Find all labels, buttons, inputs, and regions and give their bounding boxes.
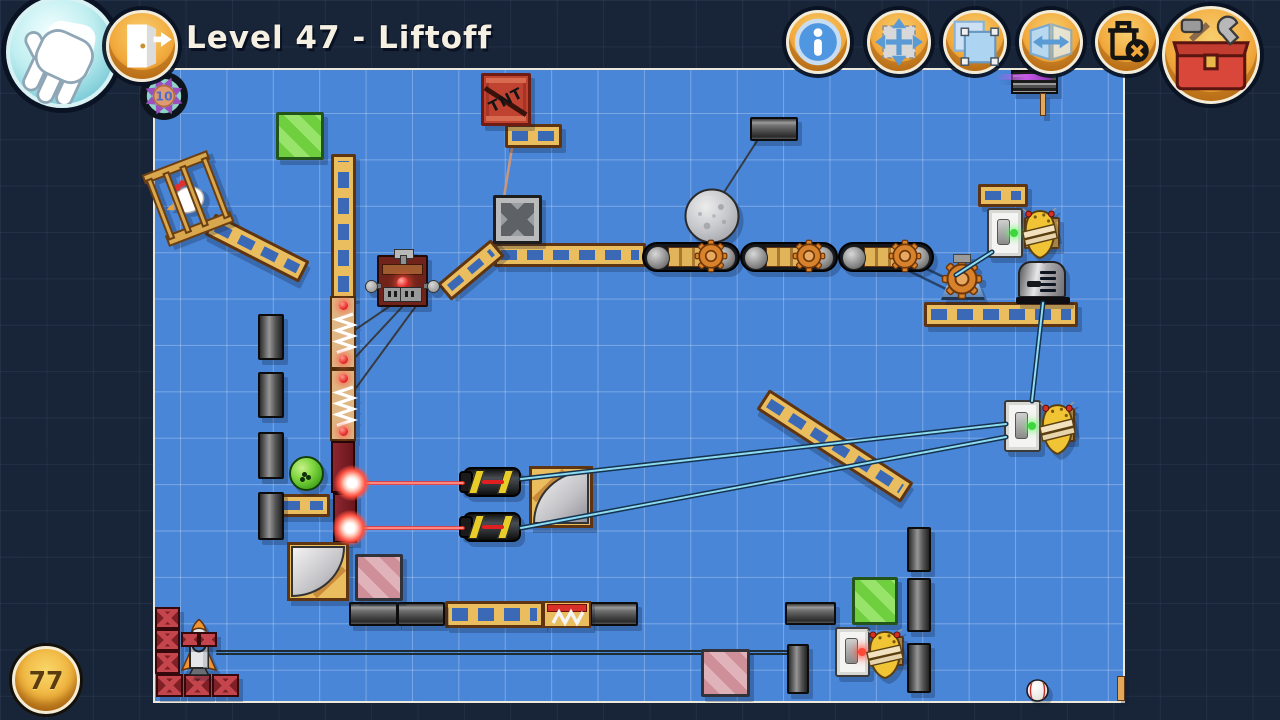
hornet-nest[interactable]: [1021, 208, 1059, 260]
conveyor-belt[interactable]: [838, 242, 934, 272]
moon-ball[interactable]: [684, 188, 740, 244]
conveyor-belt[interactable]: [642, 242, 740, 272]
svg-text:10: 10: [155, 89, 173, 104]
delete-button[interactable]: [1095, 10, 1159, 74]
steel-block[interactable]: [907, 527, 931, 572]
steel-block[interactable]: [349, 602, 398, 626]
gear-icon: [694, 239, 728, 273]
gear-icon: [792, 239, 826, 273]
boxed-spring[interactable]: [543, 601, 591, 628]
wooden-girder[interactable]: [505, 124, 562, 148]
green-striped-crate[interactable]: [852, 577, 898, 625]
spring[interactable]: [330, 296, 356, 369]
green-bowling-ball[interactable]: [289, 456, 324, 491]
red-truss-crate[interactable]: [155, 607, 180, 629]
spring[interactable]: [330, 369, 356, 441]
pink-striped-crate[interactable]: [701, 649, 750, 697]
curved-mirror[interactable]: [529, 466, 593, 528]
steel-block[interactable]: [590, 602, 638, 626]
switch-light-green: [1028, 422, 1036, 430]
steel-block[interactable]: [787, 644, 809, 694]
red-truss-crate[interactable]: [184, 674, 211, 697]
metal-crate[interactable]: [493, 195, 542, 244]
roller: [646, 246, 670, 270]
red-truss-crate[interactable]: [155, 629, 180, 651]
switch-light-green: [1010, 229, 1018, 237]
steel-block[interactable]: [785, 602, 836, 625]
roller: [842, 246, 866, 270]
green-striped-crate[interactable]: [276, 112, 324, 160]
baseball[interactable]: [1026, 679, 1049, 702]
steel-block[interactable]: [258, 432, 284, 479]
wooden-girder[interactable]: [494, 243, 646, 267]
red-truss-crate[interactable]: [212, 674, 239, 697]
toaster[interactable]: [1016, 261, 1070, 304]
level-title: Level 47 - Liftoff: [186, 20, 492, 56]
hornet-nest[interactable]: [1038, 402, 1077, 456]
steel-block[interactable]: [397, 602, 445, 626]
steel-block[interactable]: [258, 372, 284, 418]
gear-icon: [941, 258, 983, 300]
laser-gun[interactable]: [463, 512, 521, 542]
play-area[interactable]: [153, 68, 1125, 703]
steel-block[interactable]: [907, 578, 931, 632]
score-value: 77: [29, 666, 64, 695]
laser-spark: [332, 510, 368, 546]
red-truss-crate[interactable]: [199, 632, 217, 647]
laser-gun[interactable]: [463, 467, 521, 497]
wooden-girder[interactable]: [924, 302, 1078, 327]
select-button[interactable]: [943, 10, 1007, 74]
laser-spark: [334, 465, 370, 501]
pink-striped-crate[interactable]: [355, 554, 403, 601]
red-truss-crate[interactable]: [156, 674, 183, 697]
wooden-girder[interactable]: [445, 601, 544, 628]
flip-button[interactable]: [1019, 10, 1083, 74]
wall-switch[interactable]: [987, 208, 1023, 258]
roller: [744, 246, 768, 270]
motor-bracket: [953, 254, 971, 263]
steel-block[interactable]: [750, 117, 798, 141]
wooden-girder[interactable]: [277, 494, 330, 517]
hand-tool-button[interactable]: [6, 0, 118, 108]
exit-button[interactable]: [106, 10, 178, 82]
toolbox-button[interactable]: [1162, 6, 1260, 104]
info-button[interactable]: [786, 10, 850, 74]
wall-switch[interactable]: [1004, 400, 1041, 452]
move-button[interactable]: [867, 10, 931, 74]
steel-block[interactable]: [907, 643, 931, 693]
steel-block[interactable]: [258, 492, 284, 540]
wooden-girder[interactable]: [978, 184, 1028, 207]
conveyor-belt[interactable]: [740, 242, 838, 272]
red-truss-crate[interactable]: [181, 632, 199, 647]
motor-gear[interactable]: [940, 258, 986, 303]
curved-mirror[interactable]: [287, 542, 349, 601]
hornet-nest[interactable]: [865, 629, 905, 680]
red-truss-crate[interactable]: [155, 651, 180, 674]
detonator[interactable]: [377, 255, 428, 307]
wooden-girder[interactable]: [331, 154, 356, 299]
tnt-crate[interactable]: TNT: [481, 73, 531, 126]
rocket[interactable]: [179, 618, 219, 677]
score-badge: 77: [12, 646, 80, 714]
wood-stick[interactable]: [1117, 676, 1125, 701]
steel-block[interactable]: [258, 314, 284, 360]
wood-stick[interactable]: [1040, 93, 1046, 116]
gear-icon: [888, 239, 922, 273]
